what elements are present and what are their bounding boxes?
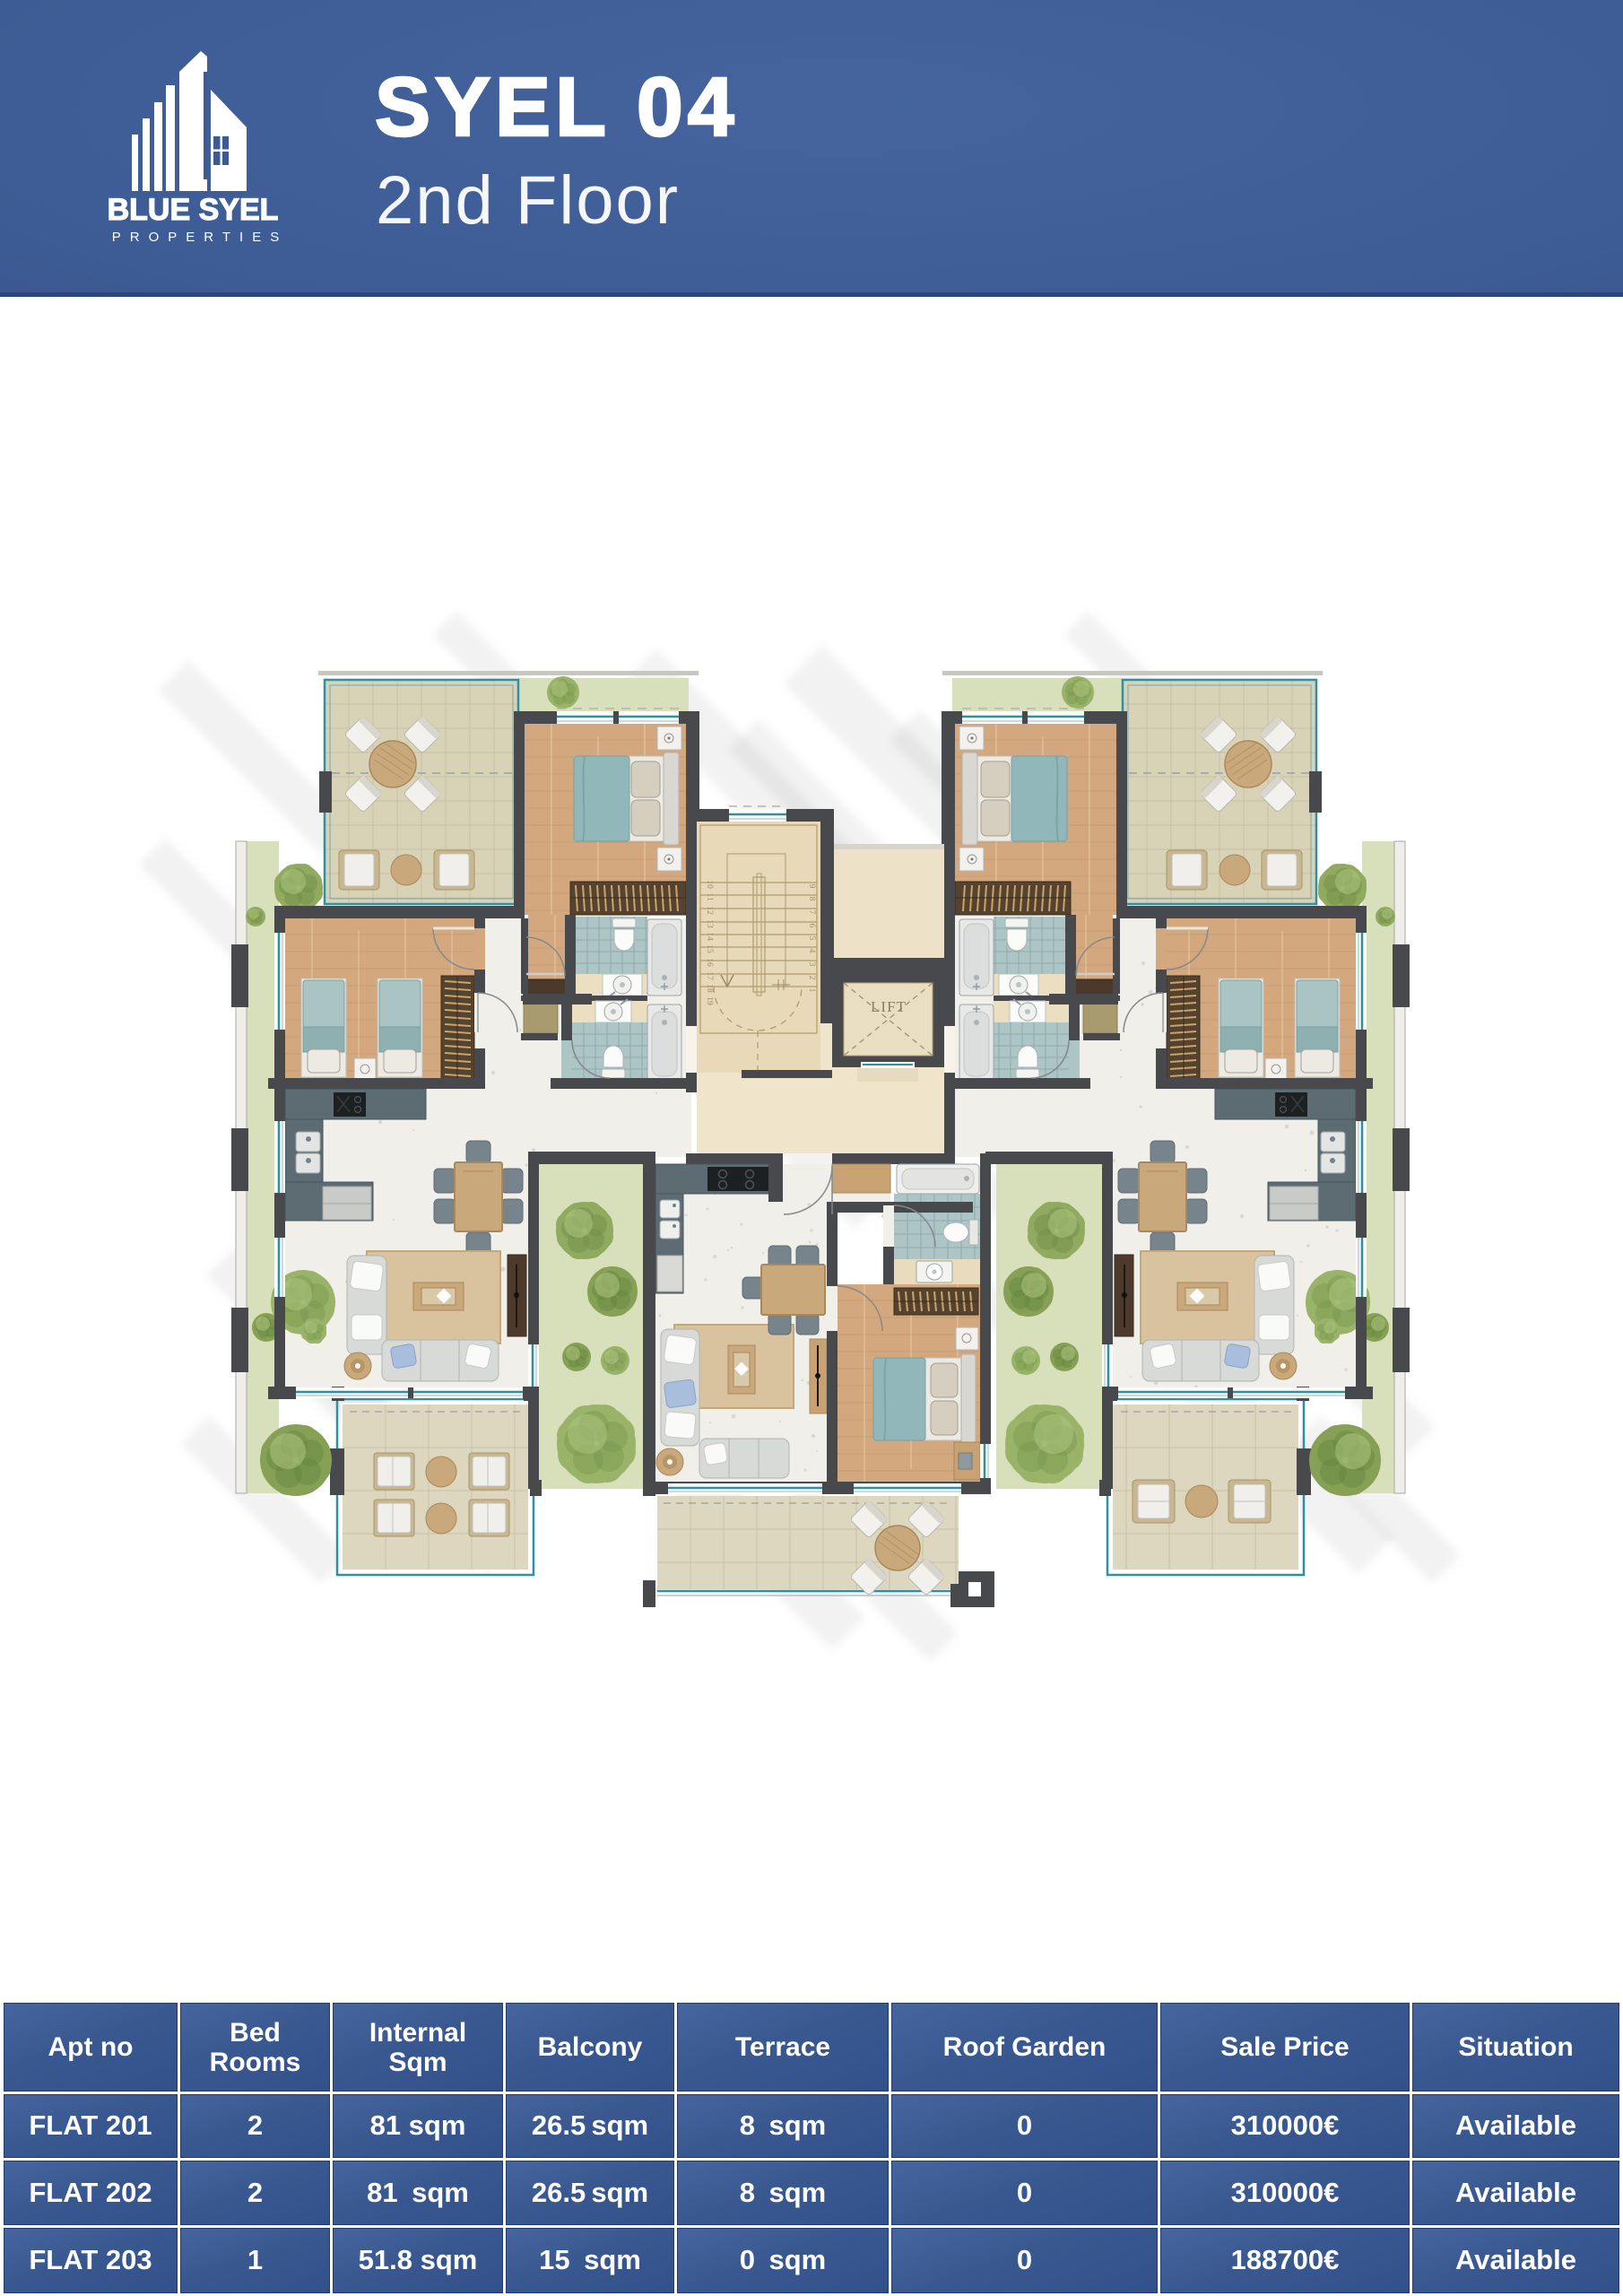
svg-text:16: 16: [705, 958, 714, 967]
svg-text:6: 6: [807, 924, 816, 928]
svg-text:2: 2: [807, 976, 816, 980]
svg-text:9: 9: [807, 884, 816, 889]
svg-text:LIFT: LIFT: [871, 998, 907, 1015]
svg-text:8: 8: [807, 897, 816, 901]
svg-text:12: 12: [705, 906, 714, 915]
svg-text:1: 1: [807, 988, 816, 993]
svg-text:11: 11: [705, 892, 714, 900]
svg-text:7: 7: [807, 910, 816, 915]
svg-text:13: 13: [705, 919, 714, 928]
svg-text:3: 3: [807, 962, 816, 967]
svg-text:14: 14: [705, 932, 714, 941]
svg-text:15: 15: [705, 944, 714, 953]
svg-text:18: 18: [705, 984, 714, 993]
svg-text:17: 17: [705, 971, 714, 980]
svg-text:5: 5: [807, 936, 816, 941]
svg-text:10: 10: [705, 880, 714, 889]
svg-text:4: 4: [807, 949, 816, 953]
svg-text:19: 19: [705, 996, 714, 1005]
